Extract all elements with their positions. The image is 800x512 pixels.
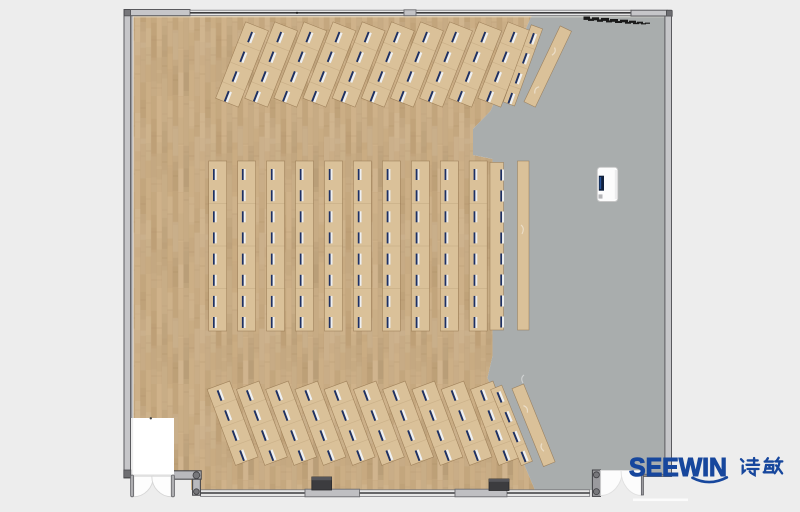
svg-text:SEEWIN: SEEWIN <box>629 452 727 482</box>
